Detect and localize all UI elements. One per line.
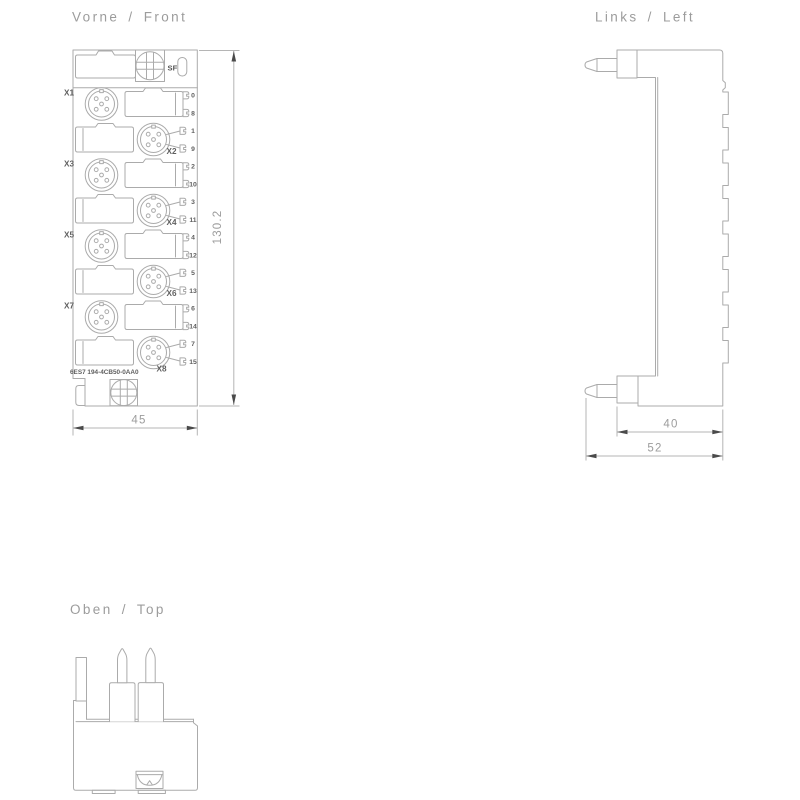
clip-icon <box>180 358 186 365</box>
top-foot <box>92 790 115 793</box>
sf-status-label: SF <box>168 64 178 73</box>
front-view-title: Vorne / Front <box>72 10 187 25</box>
clip-icon <box>183 322 189 329</box>
m12-socket-icon <box>137 265 170 298</box>
clip-icon <box>183 92 189 99</box>
connector-row: X3 2 10 <box>64 159 197 192</box>
connector-label: X6 <box>167 289 177 298</box>
dimension-drawing: Vorne / Front SF X1 0 8 <box>0 0 800 800</box>
bottom-screw-icon <box>109 379 139 408</box>
top-pin-icon <box>138 648 163 721</box>
bus-pin-top-icon <box>585 50 637 78</box>
channel-number: 4 <box>191 235 195 242</box>
clip-icon <box>183 109 189 116</box>
dimension-width-label: 45 <box>131 415 146 427</box>
connector-label: X4 <box>167 218 177 227</box>
channel-number: 10 <box>189 182 197 189</box>
terminal-connector-icon <box>76 124 134 153</box>
connector-row: X5 4 12 <box>64 230 197 263</box>
clip-icon <box>180 287 186 294</box>
connector-label: X3 <box>64 160 74 169</box>
front-mounting-foot <box>76 386 85 406</box>
left-profile-outline <box>637 50 728 406</box>
m12-socket-icon <box>85 159 118 192</box>
m12-socket-icon <box>85 301 118 334</box>
dimension-depth-total: 52 <box>586 398 723 461</box>
top-left-flange <box>76 658 87 702</box>
left-view: Links / Left 40 52 <box>585 10 728 461</box>
terminal-connector-icon <box>76 266 134 295</box>
front-view: Vorne / Front SF X1 0 8 <box>64 10 240 436</box>
dimension-height-label: 130.2 <box>212 210 224 245</box>
top-view: Oben / Top <box>70 602 198 794</box>
channel-number: 2 <box>191 164 195 171</box>
clip-icon <box>180 198 186 205</box>
channel-number: 5 <box>191 270 195 277</box>
connector-label: X2 <box>167 147 177 156</box>
connector-row: X7 6 14 <box>64 301 197 334</box>
channel-number: 1 <box>191 128 195 135</box>
technical-drawing-page: Vorne / Front SF X1 0 8 <box>0 0 800 800</box>
terminal-connector-icon <box>76 337 134 366</box>
clip-icon <box>183 163 189 170</box>
clip-icon <box>180 269 186 276</box>
left-view-title: Links / Left <box>595 10 695 25</box>
clip-icon <box>183 234 189 241</box>
bus-pin-bottom-icon <box>585 376 638 403</box>
clip-icon <box>180 340 186 347</box>
terminal-connector-icon <box>125 159 183 188</box>
head-terminal-block <box>76 51 136 78</box>
connector-row: X4 3 11 <box>76 194 197 227</box>
connector-label: X5 <box>64 231 74 240</box>
connector-row: X1 0 8 <box>64 88 195 121</box>
channel-number: 14 <box>189 324 197 331</box>
channel-number: 0 <box>191 93 195 100</box>
terminal-connector-icon <box>76 195 134 224</box>
channel-number: 7 <box>191 341 195 348</box>
channel-number: 11 <box>189 217 196 224</box>
terminal-connector-icon <box>125 230 183 259</box>
m12-socket-icon <box>85 230 118 263</box>
clip-icon <box>183 251 189 258</box>
dimension-depth-total-label: 52 <box>647 443 662 455</box>
clip-icon <box>183 305 189 312</box>
connector-label: X7 <box>64 302 74 311</box>
channel-number: 15 <box>189 359 197 366</box>
clip-icon <box>180 127 186 134</box>
m12-socket-icon <box>137 123 170 156</box>
dimension-depth-inner-label: 40 <box>663 419 678 431</box>
connector-row: X8 7 15 <box>76 336 197 373</box>
top-view-title: Oben / Top <box>70 602 166 617</box>
clip-icon <box>180 145 186 152</box>
m12-socket-icon <box>137 194 170 227</box>
top-foot <box>138 790 165 793</box>
channel-number: 6 <box>191 306 195 313</box>
m12-socket-icon <box>85 88 118 121</box>
sf-led-icon <box>178 58 187 77</box>
channel-number: 12 <box>189 253 197 260</box>
channel-number: 9 <box>191 146 195 153</box>
part-number: 6ES7 194-4CB50-0AA0 <box>70 369 139 376</box>
connector-row: X6 5 13 <box>76 265 197 298</box>
dimension-width: 45 <box>73 410 197 436</box>
terminal-connector-icon <box>125 301 183 330</box>
channel-number: 8 <box>191 111 195 118</box>
clip-icon <box>183 180 189 187</box>
dimension-height: 130.2 <box>199 51 240 407</box>
connector-row: X2 1 9 <box>76 123 196 156</box>
top-clamp-icon <box>136 771 163 788</box>
channel-number: 3 <box>191 199 195 206</box>
terminal-connector-icon <box>125 88 183 117</box>
channel-number: 13 <box>189 288 197 295</box>
dimension-depth-inner: 40 <box>617 407 723 461</box>
top-screw-icon <box>134 49 166 83</box>
connector-label: X1 <box>64 89 74 98</box>
connector-label: X8 <box>157 365 167 374</box>
clip-icon <box>180 216 186 223</box>
top-pin-icon <box>110 649 136 722</box>
